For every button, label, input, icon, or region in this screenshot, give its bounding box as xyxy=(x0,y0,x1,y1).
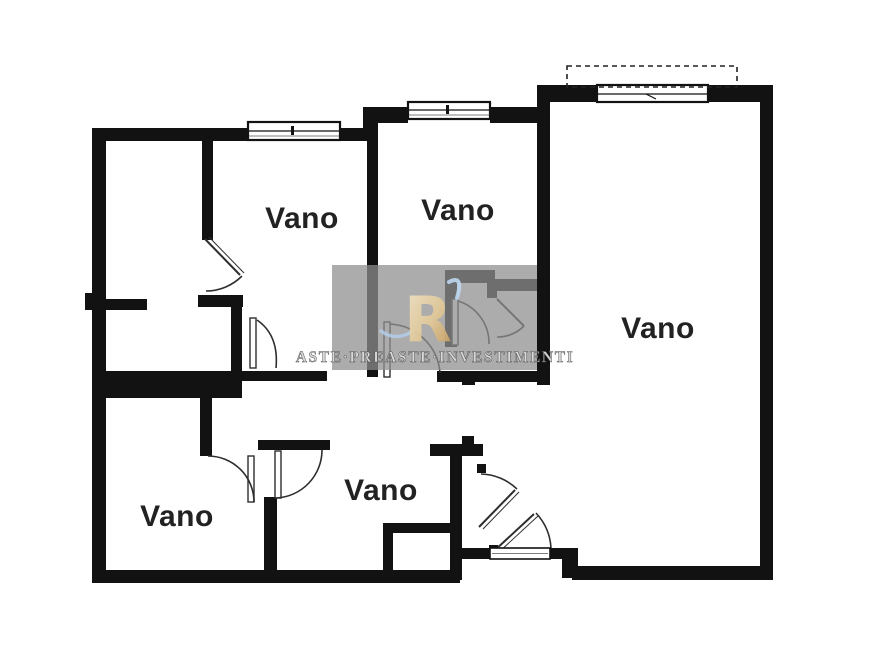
wall-segment xyxy=(264,497,277,578)
wall-segment xyxy=(450,444,462,580)
door-icon xyxy=(494,513,551,553)
wall-segment xyxy=(242,371,327,381)
floor-plan-page: R ASTE·PREASTE·INVESTIMENTI Vano Vano Va… xyxy=(0,0,880,655)
room-label-bottom-left: Vano xyxy=(140,500,214,533)
door-icon xyxy=(275,450,322,498)
door-hinge-block xyxy=(477,464,486,473)
window-icon xyxy=(408,102,490,119)
door-sill xyxy=(490,548,550,559)
door-icon xyxy=(479,474,519,529)
floor-plan-drawing: R ASTE·PREASTE·INVESTIMENTI Vano Vano Va… xyxy=(0,0,880,655)
wall-segment xyxy=(202,128,213,240)
balcony-outline xyxy=(567,66,737,87)
wall-segment xyxy=(437,371,550,382)
wall-segment xyxy=(363,107,408,123)
door-icon xyxy=(208,456,254,502)
window-icon xyxy=(248,122,340,140)
wall-segment xyxy=(383,523,455,533)
wall-segment xyxy=(258,440,330,450)
wall-segment xyxy=(231,295,242,376)
wall-segment xyxy=(383,523,393,578)
door-icon xyxy=(205,237,244,291)
wall-segment xyxy=(462,378,475,385)
room-label-top-middle: Vano xyxy=(421,194,495,227)
wall-segment xyxy=(200,396,212,456)
wall-segment xyxy=(92,371,242,398)
room-label-bottom-middle: Vano xyxy=(344,474,418,507)
watermark: R ASTE·PREASTE·INVESTIMENTI xyxy=(296,265,575,370)
watermark-company-name: ASTE·PREASTE·INVESTIMENTI xyxy=(296,349,575,366)
wall-segment xyxy=(537,85,550,385)
wall-segment xyxy=(92,128,106,583)
wall-segment xyxy=(760,85,773,580)
wall-segment xyxy=(430,444,483,456)
wall-segment xyxy=(462,436,474,445)
wall-segment xyxy=(572,566,773,580)
door-icon xyxy=(250,318,276,368)
windows xyxy=(248,85,708,140)
room-label-top-left: Vano xyxy=(265,202,339,235)
watermark-monogram: R xyxy=(404,283,452,356)
room-label-right: Vano xyxy=(621,312,695,345)
wall-segment xyxy=(92,299,147,310)
wall-segment xyxy=(562,548,578,578)
wall-segment xyxy=(92,128,248,141)
